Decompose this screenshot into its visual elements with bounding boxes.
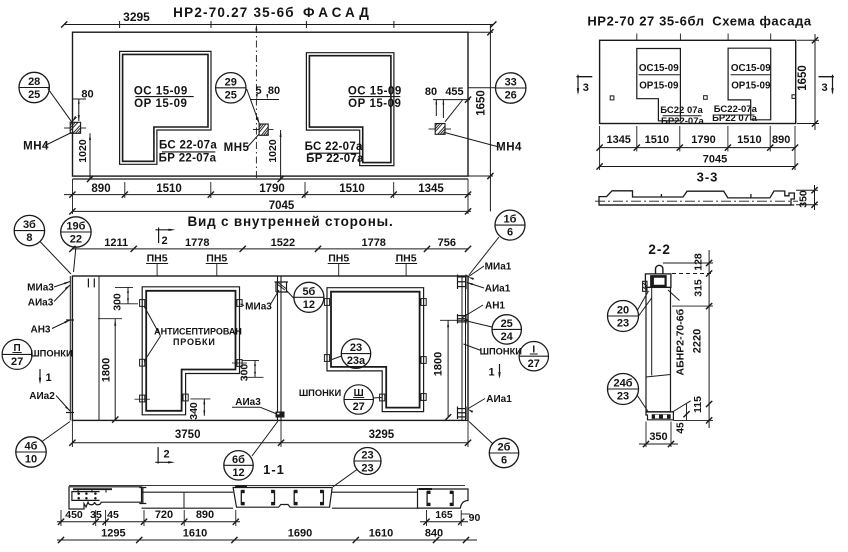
svg-text:ПН5: ПН5 [396,253,417,265]
svg-text:ШПОНКИ: ШПОНКИ [480,347,523,357]
svg-text:6: 6 [507,227,513,239]
svg-text:ПН5: ПН5 [328,253,349,265]
svg-text:1б: 1б [504,214,517,226]
svg-text:756: 756 [438,237,456,249]
svg-text:27: 27 [11,356,23,368]
svg-text:25: 25 [28,89,40,101]
svg-text:1790: 1790 [259,183,285,195]
svg-text:АН3: АН3 [30,325,50,336]
svg-text:90: 90 [469,512,481,524]
svg-text:23: 23 [361,463,373,475]
svg-text:350: 350 [798,190,810,208]
svg-text:24б: 24б [613,378,632,390]
svg-text:128: 128 [693,253,705,271]
svg-text:340: 340 [188,402,200,420]
svg-text:МН5: МН5 [224,142,250,154]
svg-text:840: 840 [425,528,443,540]
svg-text:45: 45 [676,422,687,434]
svg-text:БС 22-07а: БС 22-07а [159,140,217,152]
svg-text:28: 28 [28,76,40,88]
svg-text:1522: 1522 [271,237,295,249]
svg-text:ОР 15-09: ОР 15-09 [348,98,401,110]
svg-text:115: 115 [692,396,704,413]
svg-text:1650: 1650 [476,90,488,116]
svg-text:165: 165 [435,509,453,521]
svg-text:ПН5: ПН5 [147,253,168,265]
svg-text:МН4: МН4 [23,141,49,153]
svg-text:ФАСАД: ФАСАД [303,5,373,20]
svg-text:БС 22-07а: БС 22-07а [305,141,363,153]
svg-text:4б: 4б [25,441,38,453]
svg-text:12: 12 [303,299,315,311]
svg-text:1650: 1650 [797,65,809,91]
svg-text:23: 23 [350,342,362,354]
svg-text:35: 35 [90,509,102,521]
svg-text:2-2: 2-2 [648,242,671,257]
svg-text:1610: 1610 [369,528,393,540]
svg-text:БР22 07 а: БР22 07 а [712,113,758,124]
svg-text:ОС15-09: ОС15-09 [731,63,771,74]
svg-text:ОС15-09: ОС15-09 [639,63,679,74]
svg-text:АБНР2-70-6б: АБНР2-70-6б [675,308,687,375]
svg-text:1345: 1345 [606,134,630,146]
svg-text:1510: 1510 [339,183,365,195]
svg-text:1510: 1510 [645,134,669,146]
svg-text:1510: 1510 [156,183,182,195]
svg-text:27: 27 [353,401,365,413]
svg-text:80: 80 [268,85,280,97]
svg-text:7045: 7045 [269,200,295,212]
svg-text:29: 29 [225,76,237,88]
svg-text:1610: 1610 [183,528,207,540]
svg-text:1: 1 [45,372,51,384]
svg-text:23: 23 [617,391,629,403]
svg-text:ПРОБКИ: ПРОБКИ [173,337,216,347]
svg-text:ПН5: ПН5 [206,253,227,265]
svg-text:БР 22-07а: БР 22-07а [306,153,364,165]
svg-text:МИа1: МИа1 [485,262,512,273]
svg-text:АИа3: АИа3 [28,297,54,308]
svg-text:300: 300 [112,293,124,311]
svg-text:25: 25 [501,318,513,330]
svg-text:Вид с внутренней стороны.: Вид с внутренней стороны. [187,214,393,229]
svg-text:23: 23 [617,318,629,330]
svg-text:1778: 1778 [361,237,385,249]
svg-text:455: 455 [445,86,463,98]
svg-text:1345: 1345 [418,183,444,195]
svg-text:22: 22 [70,234,82,246]
svg-text:3295: 3295 [123,10,150,24]
svg-text:3750: 3750 [175,429,201,441]
svg-text:1800: 1800 [433,352,445,376]
svg-text:350: 350 [649,431,667,443]
svg-text:1: 1 [488,367,494,379]
svg-text:1690: 1690 [288,528,312,540]
svg-text:10: 10 [25,454,37,466]
svg-text:БС22 07а: БС22 07а [660,105,703,116]
svg-text:450: 450 [65,509,83,521]
svg-text:2: 2 [163,449,169,461]
svg-text:6: 6 [501,455,507,467]
svg-text:ШПОНКИ: ШПОНКИ [299,388,342,398]
svg-text:26: 26 [505,90,517,102]
svg-text:МИа3: МИа3 [245,302,272,313]
svg-text:24: 24 [501,331,514,343]
svg-text:890: 890 [91,183,110,195]
svg-text:1778: 1778 [185,237,209,249]
svg-text:Схема фасада: Схема фасада [712,14,812,29]
svg-text:ОС 15-09: ОС 15-09 [134,86,188,98]
svg-text:315: 315 [693,279,705,297]
svg-text:МН4: МН4 [496,142,522,154]
svg-text:АИа2: АИа2 [29,391,55,402]
svg-text:1800: 1800 [100,358,112,382]
svg-text:80: 80 [425,86,437,98]
svg-text:1295: 1295 [101,528,125,540]
svg-text:3: 3 [821,82,827,94]
svg-text:2б: 2б [498,442,511,454]
svg-text:45: 45 [107,509,119,521]
svg-text:АИа1: АИа1 [486,394,512,405]
svg-text:20: 20 [617,305,629,317]
svg-text:2220: 2220 [692,329,704,353]
svg-text:1790: 1790 [691,134,715,146]
svg-text:1-1: 1-1 [263,462,285,477]
svg-text:МИа3: МИа3 [27,283,54,294]
svg-text:ОР15-09: ОР15-09 [731,80,771,91]
svg-text:33: 33 [505,77,517,89]
svg-text:19б: 19б [66,221,85,233]
svg-text:ОР15-09: ОР15-09 [639,80,679,91]
svg-text:АИа1: АИа1 [485,284,511,295]
svg-text:2: 2 [161,235,167,247]
svg-text:27: 27 [528,358,540,370]
svg-text:25: 25 [225,89,237,101]
svg-text:5б: 5б [302,286,315,298]
svg-text:890: 890 [196,509,214,521]
svg-text:23: 23 [361,450,373,462]
svg-text:АНТИСЕПТИРОВАН: АНТИСЕПТИРОВАН [154,326,242,336]
svg-text:ОС 15-09: ОС 15-09 [348,86,402,98]
svg-text:8: 8 [26,232,32,244]
svg-text:23а: 23а [347,355,366,367]
svg-text:БР 22-07а: БР 22-07а [159,152,217,164]
svg-text:7045: 7045 [703,154,727,166]
svg-text:АИа3: АИа3 [235,397,261,408]
svg-text:6б: 6б [232,454,245,466]
svg-text:1211: 1211 [104,237,128,249]
svg-text:1510: 1510 [737,134,761,146]
svg-text:3: 3 [583,82,589,94]
svg-text:1020: 1020 [267,139,279,163]
svg-text:АН1: АН1 [485,301,505,312]
svg-text:720: 720 [155,509,173,521]
svg-text:3б: 3б [23,219,36,231]
svg-text:1020: 1020 [77,139,89,163]
svg-text:3-3: 3-3 [697,170,719,185]
svg-text:300: 300 [239,364,251,382]
svg-text:БР22-07а: БР22-07а [661,116,704,127]
svg-text:890: 890 [772,134,790,146]
svg-text:НР2-70 27 35-6бл: НР2-70 27 35-6бл [587,14,704,29]
svg-text:ШПОНКИ: ШПОНКИ [30,349,73,359]
svg-text:НР2-70.27 35-6б: НР2-70.27 35-6б [173,5,295,20]
svg-text:3295: 3295 [369,429,395,441]
svg-text:12: 12 [232,467,244,479]
svg-text:ОР 15-09: ОР 15-09 [134,98,187,110]
